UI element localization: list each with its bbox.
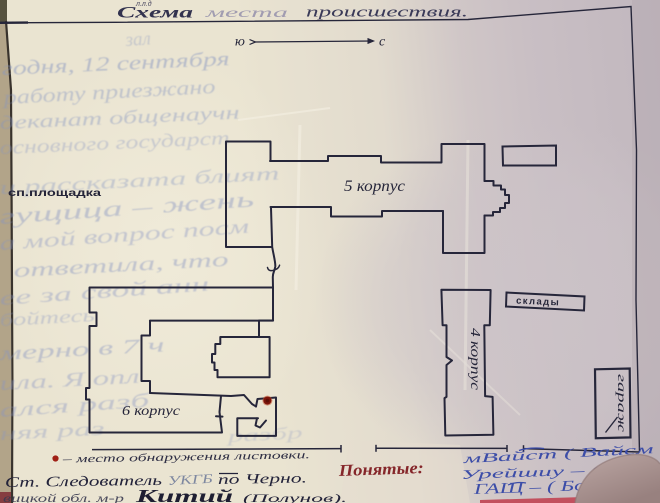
svg-text:сп.площадка: сп.площадка: [8, 187, 101, 199]
svg-text:Схема: Схема: [117, 5, 193, 22]
svg-text:гараж: гараж: [615, 374, 629, 432]
svg-text:(Полунов).: (Полунов).: [243, 491, 347, 503]
svg-text:Китий: Китий: [134, 486, 233, 503]
svg-text:зал: зал: [124, 28, 152, 51]
svg-text:4 корпус: 4 корпус: [467, 328, 482, 391]
svg-text:5 корпус: 5 корпус: [344, 178, 405, 195]
svg-text:6 корпус: 6 корпус: [122, 404, 181, 419]
svg-text:вицкой обл. м-р: вицкой обл. м-р: [3, 492, 124, 503]
svg-text:происшествия.: происшествия.: [306, 5, 468, 21]
svg-text:места: места: [204, 6, 288, 21]
svg-text:л.л.д: л.л.д: [135, 0, 152, 8]
svg-text:с: с: [379, 35, 386, 50]
svg-text:склады: склады: [516, 296, 560, 309]
svg-text:Понятые:: Понятые:: [337, 458, 424, 480]
svg-text:ю: ю: [235, 35, 245, 50]
